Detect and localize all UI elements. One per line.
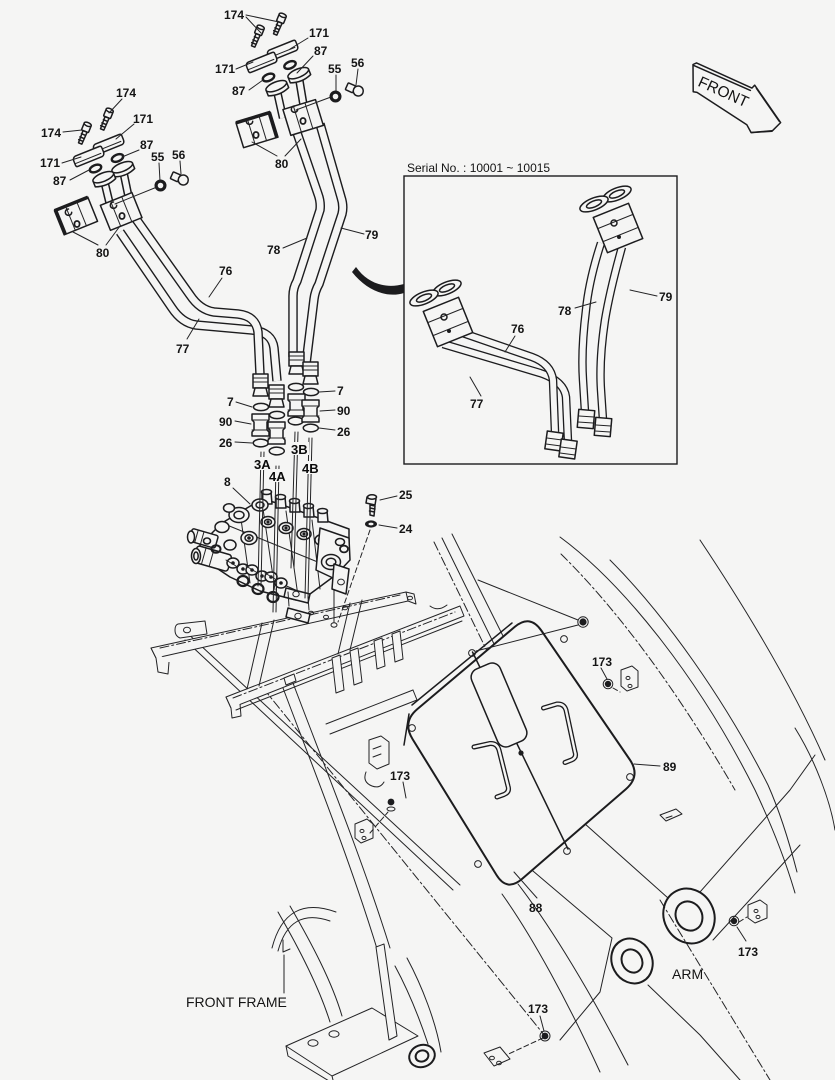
- svg-text:88: 88: [529, 901, 543, 915]
- svg-text:4A: 4A: [269, 469, 286, 484]
- svg-text:173: 173: [592, 655, 612, 669]
- svg-text:78: 78: [558, 304, 572, 318]
- svg-text:25: 25: [399, 488, 413, 502]
- svg-text:76: 76: [511, 322, 525, 336]
- svg-text:79: 79: [659, 290, 673, 304]
- svg-text:24: 24: [399, 522, 413, 536]
- svg-text:171: 171: [309, 26, 329, 40]
- svg-text:87: 87: [53, 174, 67, 188]
- svg-text:56: 56: [351, 56, 365, 70]
- svg-text:173: 173: [528, 1002, 548, 1016]
- svg-text:7: 7: [227, 395, 234, 409]
- svg-text:174: 174: [41, 126, 61, 140]
- svg-text:173: 173: [738, 945, 758, 959]
- svg-text:87: 87: [232, 84, 246, 98]
- svg-text:89: 89: [663, 760, 677, 774]
- svg-text:FRONT FRAME: FRONT FRAME: [186, 994, 287, 1010]
- svg-text:76: 76: [219, 264, 233, 278]
- svg-text:171: 171: [40, 156, 60, 170]
- svg-text:79: 79: [365, 228, 379, 242]
- svg-text:77: 77: [470, 397, 484, 411]
- svg-text:26: 26: [219, 436, 233, 450]
- svg-text:80: 80: [275, 157, 289, 171]
- svg-text:78: 78: [267, 243, 281, 257]
- svg-text:7: 7: [337, 384, 344, 398]
- svg-text:80: 80: [96, 246, 110, 260]
- svg-text:90: 90: [337, 404, 351, 418]
- svg-text:3B: 3B: [291, 442, 308, 457]
- svg-text:171: 171: [133, 112, 153, 126]
- svg-text:171: 171: [215, 62, 235, 76]
- svg-text:56: 56: [172, 148, 186, 162]
- svg-text:174: 174: [224, 8, 244, 22]
- svg-text:8: 8: [224, 475, 231, 489]
- svg-text:90: 90: [219, 415, 233, 429]
- svg-text:Serial No. : 10001 ~ 10015: Serial No. : 10001 ~ 10015: [407, 161, 550, 175]
- svg-text:4B: 4B: [302, 461, 319, 476]
- svg-text:173: 173: [390, 769, 410, 783]
- svg-text:26: 26: [337, 425, 351, 439]
- svg-text:77: 77: [176, 342, 190, 356]
- svg-text:174: 174: [116, 86, 136, 100]
- svg-text:87: 87: [314, 44, 328, 58]
- svg-text:55: 55: [151, 150, 165, 164]
- svg-text:55: 55: [328, 62, 342, 76]
- svg-text:ARM: ARM: [672, 966, 703, 982]
